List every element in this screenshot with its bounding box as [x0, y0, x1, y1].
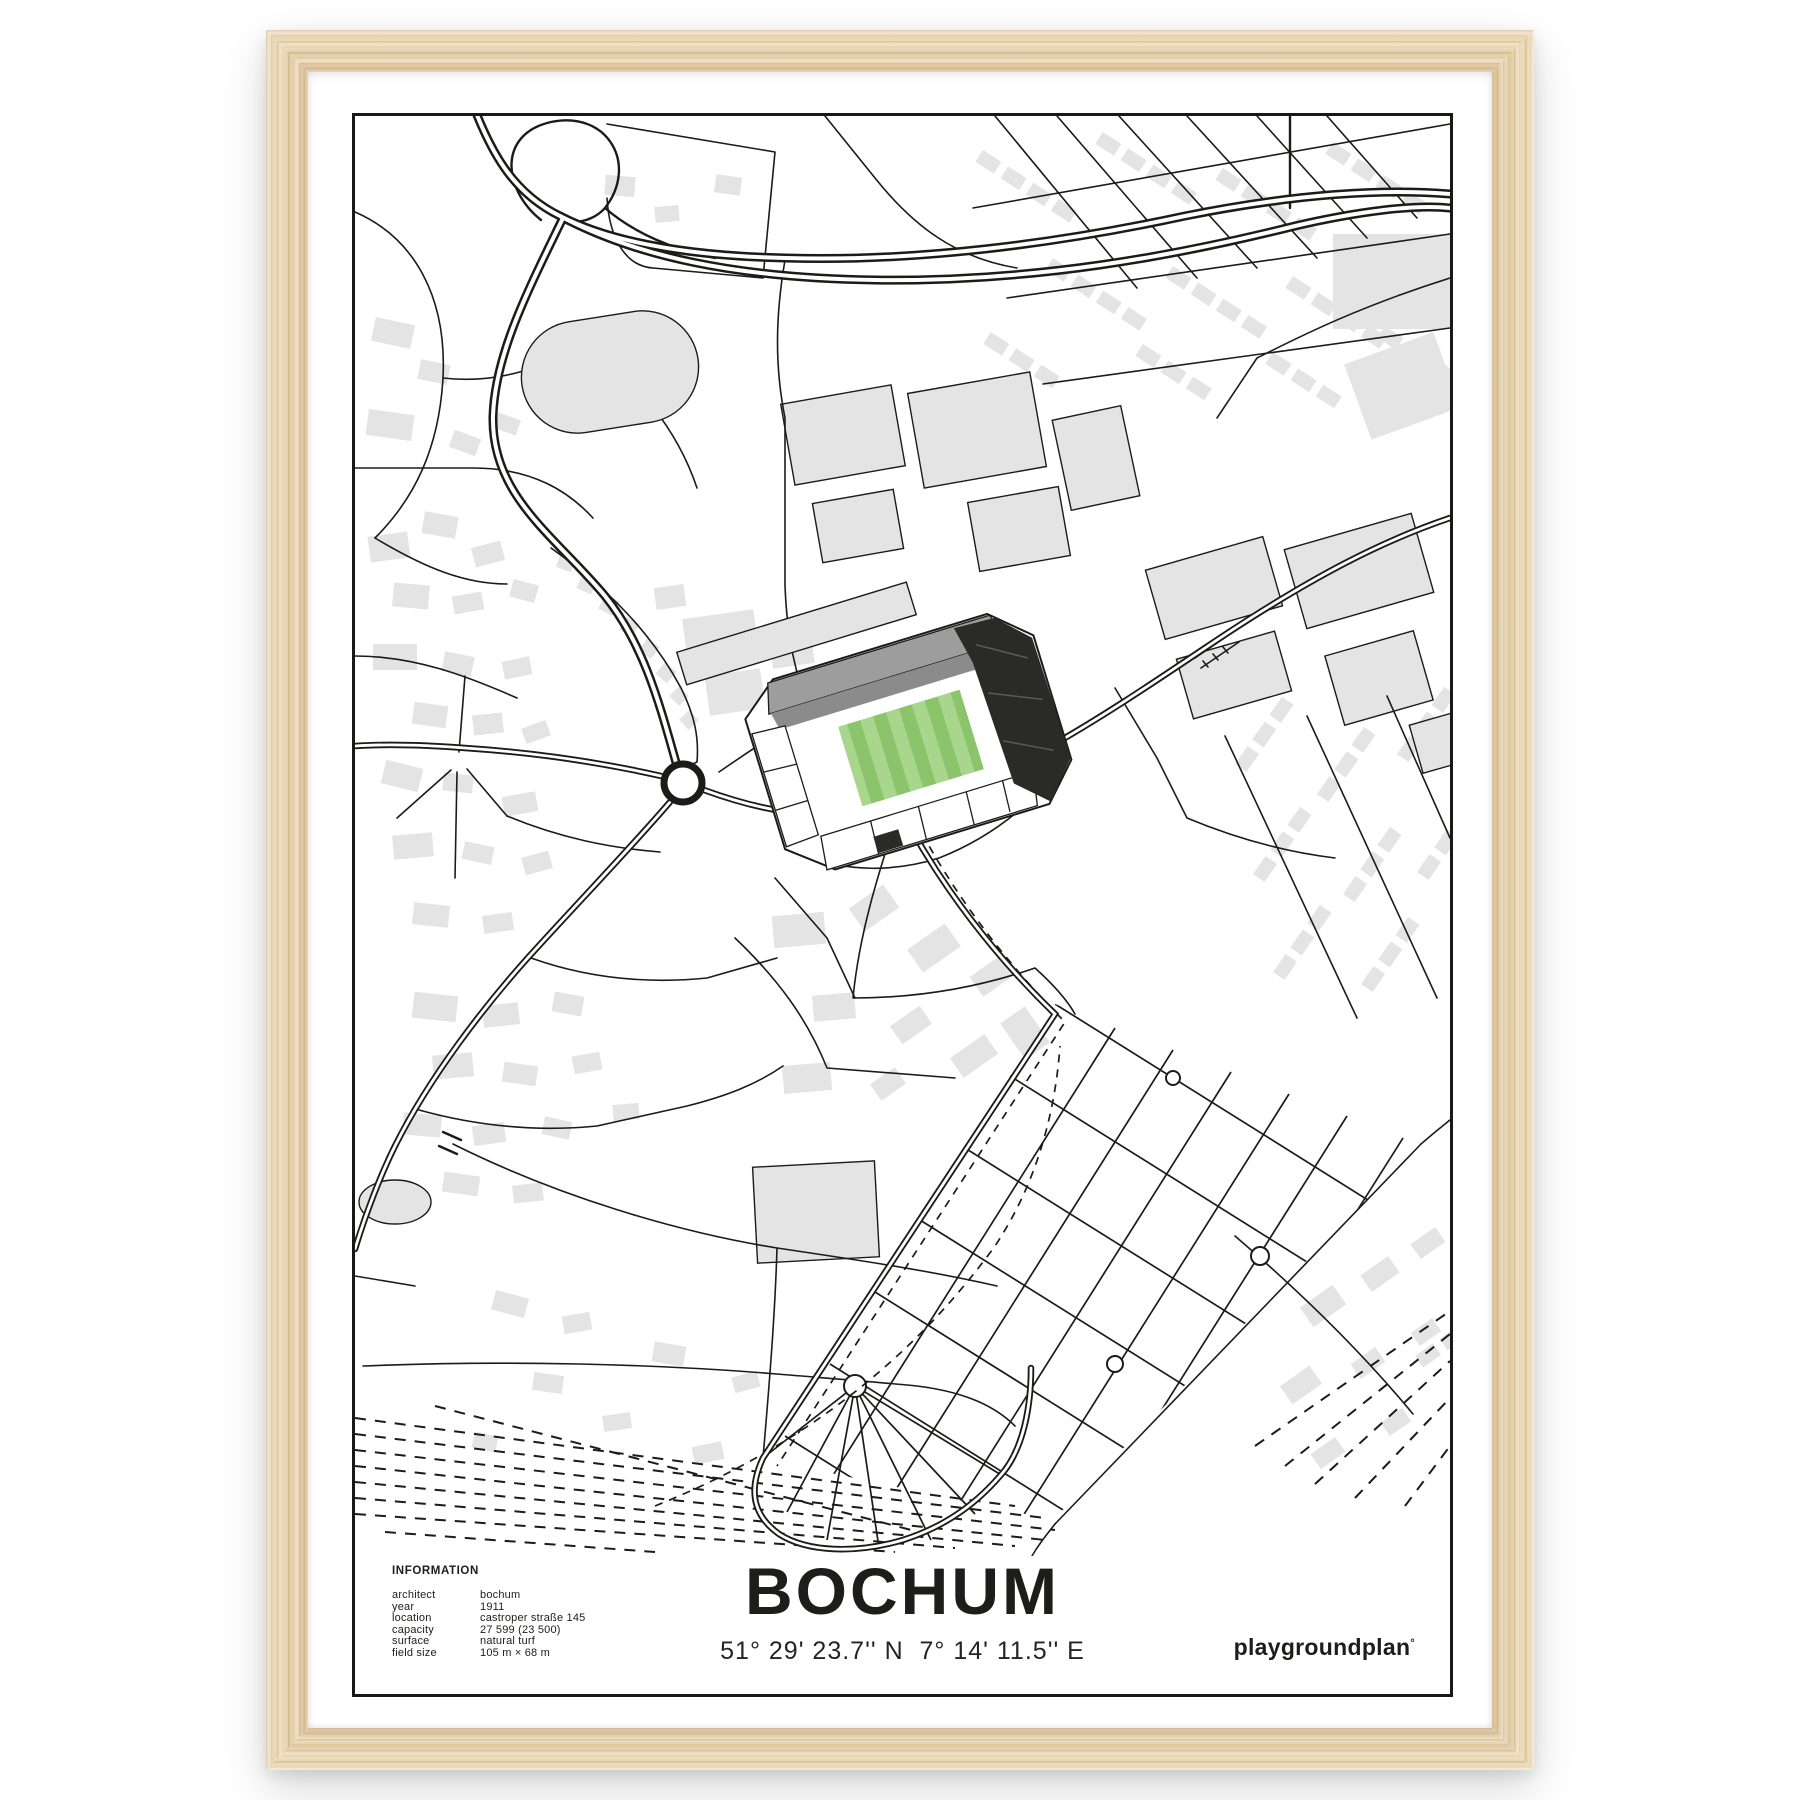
athletics-track — [513, 303, 706, 441]
roundabout — [664, 764, 702, 802]
frame-rail-left — [266, 30, 308, 1770]
stadium — [677, 551, 1082, 895]
brand-logo: playgroundplan° — [1234, 1634, 1415, 1661]
stadium-map-poster: INFORMATION architect bochum year 1911 l… — [352, 113, 1453, 1697]
wall-scene: INFORMATION architect bochum year 1911 l… — [0, 0, 1800, 1800]
frame-rail-top — [266, 30, 1534, 72]
poster-title: BOCHUM — [355, 1558, 1450, 1624]
park-boundary-road — [1055, 1144, 1421, 1524]
brand-text: playgroundplan — [1234, 1634, 1411, 1660]
frame-rail-bottom — [266, 1728, 1534, 1770]
city-map — [355, 116, 1450, 1694]
mat-board: INFORMATION architect bochum year 1911 l… — [308, 72, 1492, 1728]
brand-mark: ° — [1410, 1637, 1415, 1649]
frame-rail-right — [1492, 30, 1534, 1770]
wooden-frame: INFORMATION architect bochum year 1911 l… — [266, 30, 1534, 1770]
